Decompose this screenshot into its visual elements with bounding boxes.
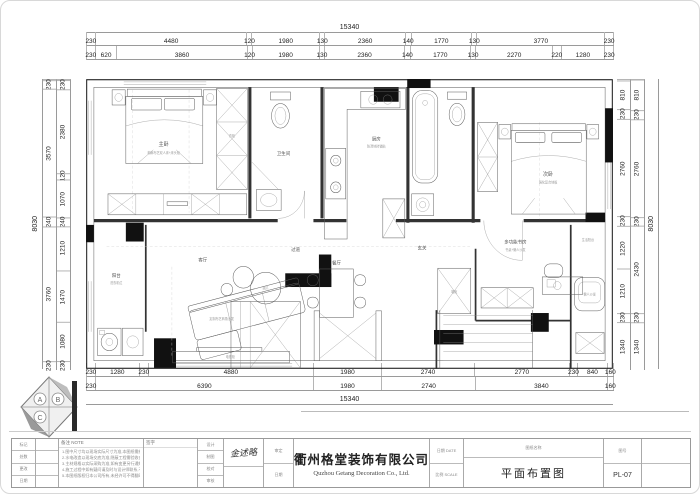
master-wardrobe bbox=[217, 88, 248, 189]
tb-cell: 审核 bbox=[198, 476, 223, 487]
label-study: 多功能书房 bbox=[504, 239, 527, 246]
dim-segment: 1220 bbox=[617, 226, 630, 270]
label-living: 客厅 bbox=[198, 256, 207, 263]
dim-bottom-row2: 2306390198027403840160 bbox=[86, 377, 614, 391]
dim-segment: 230 bbox=[87, 32, 96, 45]
bathroom2-fixtures bbox=[412, 91, 467, 216]
master-cabinet-row bbox=[108, 194, 247, 215]
tb-cell: 校对 bbox=[198, 464, 223, 476]
dim-segment: 230 bbox=[43, 80, 56, 89]
balcony-appliances bbox=[98, 328, 143, 355]
living-tables bbox=[221, 266, 281, 304]
tb-blank-col bbox=[36, 439, 59, 487]
tb-notes-header: 备注 NOTE bbox=[59, 439, 143, 448]
interior-walls bbox=[94, 87, 605, 369]
label-study-note: 书桌+懒人沙发 bbox=[505, 247, 526, 252]
tb-cell bbox=[36, 464, 58, 476]
dim-top-total: 15340 bbox=[86, 19, 613, 33]
drawing-number: PL-07 bbox=[613, 472, 632, 479]
tb-cell bbox=[642, 439, 690, 464]
label-shoe-cabinet: 鞋柜 bbox=[451, 289, 457, 294]
dim-segment: 220 bbox=[553, 46, 561, 59]
tb-signature-col: 金述略 bbox=[224, 439, 264, 487]
dim-segment: 2360 bbox=[325, 32, 405, 45]
stairs-storage bbox=[231, 301, 300, 367]
tb-date-scale-col: 日期 DATE 比例 SCALE bbox=[430, 439, 464, 487]
label-bath1: 卫生间 bbox=[277, 150, 291, 157]
balcony2-furniture bbox=[575, 278, 605, 354]
tb-cell: 日期 DATE bbox=[430, 439, 463, 464]
structural-columns bbox=[86, 79, 613, 368]
label-balcony2: 生活阳台 bbox=[582, 237, 594, 242]
dim-segment: 2430 bbox=[631, 226, 644, 313]
label-balcony-note: 洗衣机位 bbox=[110, 280, 123, 285]
compass-letter-c: C bbox=[37, 415, 42, 422]
label-bed2-note: 强化复合地板 bbox=[539, 180, 558, 185]
label-kitchen-note: 防滑地砖铺贴 bbox=[367, 144, 386, 149]
tb-end-col bbox=[642, 439, 690, 487]
tb-cell: 日期 bbox=[12, 476, 35, 487]
dim-segment: 1770 bbox=[412, 32, 473, 45]
dim-segment: 230 bbox=[617, 313, 630, 322]
tb-notes-body: 1.图中尺寸均以现场实际尺寸为准,本图纸需经公司及业主确认后方可施工。 2.水电… bbox=[59, 448, 143, 487]
dim-right-inner: 8102302760230122012102301340 bbox=[617, 79, 631, 370]
dim-segment: 4480 bbox=[96, 32, 248, 45]
dim-segment: 3770 bbox=[477, 32, 605, 45]
dim-right-outer: 810230276023024302301340 bbox=[631, 79, 645, 370]
dim-segment: 2270 bbox=[476, 46, 553, 59]
compass-svg: A B C bbox=[19, 375, 79, 439]
dim-bottom-total: 15340 bbox=[86, 391, 613, 405]
dim-segment: 230 bbox=[57, 361, 70, 370]
dim-segment: 3840 bbox=[476, 377, 607, 390]
dim-segment: 230 bbox=[631, 217, 644, 226]
dim-segment: 1470 bbox=[57, 270, 70, 322]
tb-signature-cell: 金述略 bbox=[224, 439, 263, 467]
dim-top-row2: 2306203860120198013023601401770130227022… bbox=[86, 46, 614, 60]
dim-total-value: 15340 bbox=[340, 24, 359, 32]
dim-segment: 810 bbox=[617, 80, 630, 109]
dim-left-inner: 23023801201070240121014701080230 bbox=[57, 79, 71, 370]
dim-segment: 1080 bbox=[57, 322, 70, 361]
tb-role-col: 设计 制图 校对 审核 bbox=[198, 439, 224, 487]
label-sofa-note: 定制布艺转角沙发 bbox=[209, 316, 234, 321]
dim-segment: 6390 bbox=[96, 377, 314, 390]
tb-number-col: 图号 PL-07 bbox=[604, 439, 642, 487]
frame-line bbox=[9, 431, 691, 432]
tb-cell: 比例 SCALE bbox=[430, 464, 463, 488]
dim-segment: 1340 bbox=[617, 322, 630, 370]
drawing-title: 平面布置图 bbox=[501, 465, 566, 481]
dim-left-outer: 23035702403760230 bbox=[43, 79, 57, 370]
dim-segment: 230 bbox=[617, 216, 630, 225]
tb-cell bbox=[36, 476, 58, 487]
company-name-en: Quzhou Getang Decoration Co., Ltd. bbox=[313, 470, 409, 477]
label-entry: 玄关 bbox=[418, 244, 427, 251]
dim-segment: 620 bbox=[96, 46, 118, 59]
tb-notes-col: 备注 NOTE 1.图中尺寸均以现场实际尺寸为准,本图纸需经公司及业主确认后方可… bbox=[59, 439, 144, 487]
floor-plan-svg: 主卧 棉麻布艺双人床+床头柜 衣柜 卫生间 厨房 防滑地砖铺贴 次卧 强化复合地… bbox=[86, 79, 613, 369]
dim-top-row1: 23044801201980130236014017701303770230 bbox=[86, 32, 614, 46]
label-dining: 餐厅 bbox=[332, 260, 341, 267]
compass-letter-a: A bbox=[38, 397, 43, 404]
floor-plan: 主卧 棉麻布艺双人床+床头柜 衣柜 卫生间 厨房 防滑地砖铺贴 次卧 强化复合地… bbox=[86, 79, 613, 369]
dim-segment: 3760 bbox=[43, 226, 56, 360]
tb-no-label: 图号 bbox=[604, 439, 641, 464]
dim-segment: 1070 bbox=[57, 179, 70, 217]
tb-name-label: 图纸名称 bbox=[464, 439, 603, 458]
dim-segment: 120 bbox=[57, 173, 70, 178]
compass-letter-b: B bbox=[56, 397, 61, 404]
dim-segment: 230 bbox=[87, 377, 96, 390]
dim-segment: 240 bbox=[43, 217, 56, 227]
compass-bar bbox=[72, 381, 77, 431]
dim-segment: 230 bbox=[631, 313, 644, 322]
room-labels: 主卧 棉麻布艺双人床+床头柜 衣柜 卫生间 厨房 防滑地砖铺贴 次卧 强化复合地… bbox=[110, 133, 597, 359]
dim-segment: 2760 bbox=[617, 119, 630, 217]
label-armchair: 懒人沙发 bbox=[583, 292, 596, 297]
dim-segment: 1980 bbox=[253, 46, 320, 59]
bedroom2-bed bbox=[478, 122, 599, 260]
label-master-wardrobe: 衣柜 bbox=[229, 133, 235, 138]
tb-cell bbox=[224, 467, 263, 487]
label-hallway: 过道 bbox=[291, 246, 300, 253]
dim-segment: 230 bbox=[605, 32, 614, 45]
tb-title-col: 图纸名称 平面布置图 bbox=[464, 439, 604, 487]
tb-cell bbox=[36, 451, 58, 463]
tb-company-col: 衢州格堂装饰有限公司 Quzhou Getang Decoration Co.,… bbox=[294, 439, 430, 487]
dim-segment: 1980 bbox=[252, 32, 320, 45]
dim-segment: 240 bbox=[57, 217, 70, 226]
label-bed2: 次卧 bbox=[543, 170, 554, 178]
label-kitchen: 厨房 bbox=[372, 135, 381, 142]
label-master-note: 棉麻布艺双人床+床头柜 bbox=[147, 150, 180, 155]
dim-segment: 1210 bbox=[57, 226, 70, 269]
tb-cell: 标记 bbox=[12, 439, 35, 451]
dim-segment: 160 bbox=[608, 377, 614, 390]
tb-note-line: 5.本图纸版权归本公司所有,未经许可不得翻印。 bbox=[62, 473, 140, 479]
ground-line bbox=[301, 411, 689, 412]
study-furniture bbox=[481, 264, 583, 308]
dim-segment: 1340 bbox=[631, 322, 644, 370]
tb-approve-col: 审定 日期 bbox=[264, 439, 294, 487]
title-block: 标记 处数 更改 日期 备注 NOTE 1.图中尺寸均以现场实际尺寸为准,本图纸… bbox=[11, 438, 691, 488]
dim-segment: 1980 bbox=[314, 377, 382, 390]
company-name-cn: 衢州格堂装饰有限公司 bbox=[294, 449, 429, 468]
dim-segment: 230 bbox=[631, 110, 644, 119]
dim-segment: 230 bbox=[87, 46, 96, 59]
label-balcony: 阳台 bbox=[112, 272, 121, 279]
label-tv-note: 电视柜 bbox=[226, 354, 235, 359]
drawing-sheet: 15340 2304480120198013023601401770130377… bbox=[0, 0, 700, 494]
tb-revision-col: 标记 处数 更改 日期 bbox=[12, 439, 36, 487]
tb-cell bbox=[36, 439, 58, 451]
entry-door bbox=[314, 311, 381, 361]
dim-segment: 810 bbox=[631, 80, 644, 110]
tb-cell: 更改 bbox=[12, 464, 35, 476]
label-round-table: 圆几 bbox=[263, 286, 270, 290]
dim-right-total: 8030 bbox=[645, 79, 659, 369]
dim-segment: 2360 bbox=[325, 46, 405, 59]
tb-drawing-title-cell: 平面布置图 bbox=[464, 458, 603, 487]
dim-total-value: 8030 bbox=[32, 216, 39, 232]
dim-segment: 2380 bbox=[57, 89, 70, 173]
label-master: 主卧 bbox=[159, 140, 170, 148]
tb-sign-header: 签字 bbox=[144, 439, 197, 448]
dim-segment: 230 bbox=[605, 46, 614, 59]
tb-cell: 审定 bbox=[264, 439, 293, 464]
dim-segment: 3860 bbox=[117, 46, 247, 59]
tb-cell: 制图 bbox=[198, 451, 223, 463]
dim-segment: 230 bbox=[617, 109, 630, 118]
compass: A B C bbox=[19, 375, 79, 439]
dim-segment: 1210 bbox=[617, 269, 630, 313]
tb-cell: 日期 bbox=[264, 464, 293, 488]
dim-segment: 1770 bbox=[411, 46, 471, 59]
kitchen-fixtures bbox=[324, 88, 405, 239]
tb-cell: 处数 bbox=[12, 451, 35, 463]
dim-segment: 2740 bbox=[382, 377, 476, 390]
dim-total-value: 8030 bbox=[648, 216, 655, 232]
tb-drawing-no-cell: PL-07 bbox=[604, 464, 641, 488]
signature: 金述略 bbox=[230, 445, 258, 460]
dim-segment: 230 bbox=[57, 80, 70, 89]
dim-segment: 3570 bbox=[43, 89, 56, 217]
tb-sign-col: 签字 bbox=[144, 439, 198, 487]
tb-cell bbox=[642, 464, 690, 488]
dim-segment: 1280 bbox=[562, 46, 606, 59]
tb-cell: 设计 bbox=[198, 439, 223, 451]
dim-segment: 230 bbox=[43, 361, 56, 370]
dim-total-value: 15340 bbox=[340, 396, 359, 404]
dim-left-total: 8030 bbox=[29, 79, 43, 369]
dim-segment: 2760 bbox=[631, 119, 644, 217]
tb-cell bbox=[144, 448, 197, 487]
